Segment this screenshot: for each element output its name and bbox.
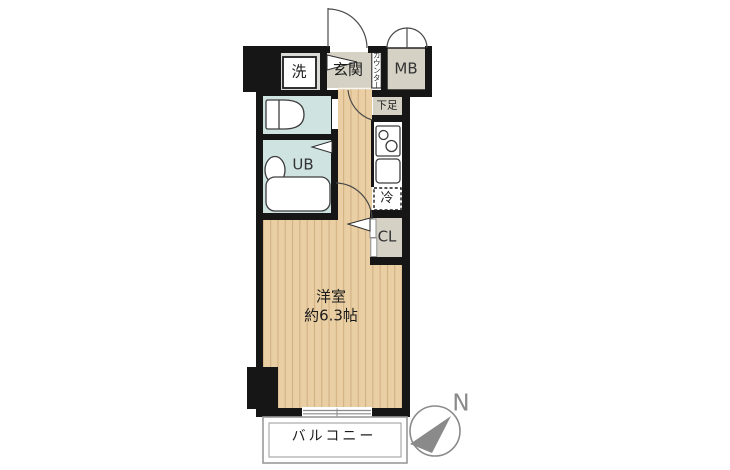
wall-segment <box>256 408 302 417</box>
wall-segment <box>256 213 338 220</box>
structural-column <box>247 367 278 409</box>
wall-segment <box>371 120 374 187</box>
wall-segment <box>258 134 338 140</box>
main-room-name: 洋室 <box>304 287 358 306</box>
wall-segment <box>370 257 410 265</box>
wall-segment <box>381 47 387 92</box>
wall-segment <box>320 47 327 92</box>
stove-fixture <box>376 126 400 156</box>
closet-label: CL <box>378 228 397 247</box>
compass-north-label: N <box>452 390 469 419</box>
refrigerator-label: 冷 <box>380 191 393 207</box>
laundry-label: 洗 <box>291 63 306 82</box>
balcony-label: バルコニー <box>292 428 377 446</box>
wall-segment <box>243 46 281 92</box>
unit-bath-label: UB <box>292 156 313 175</box>
wall-segment <box>372 408 410 417</box>
wall-segment <box>402 96 410 417</box>
wall-segment <box>425 46 432 97</box>
sink-fixture <box>376 159 400 183</box>
entrance-door-arc <box>328 8 367 48</box>
wall-segment <box>372 115 410 122</box>
floor-plan-drawing <box>0 0 730 470</box>
meter-box-label: MB <box>394 60 417 79</box>
floor-plan: 洗 玄関 カウンター MB 下足 UB 冷 CL 洋室 約6.3帖 バルコニー … <box>0 0 730 470</box>
main-room-label: 洋室 約6.3帖 <box>304 287 358 325</box>
meter-box-door-arcs <box>387 28 427 48</box>
entrance-label: 玄関 <box>333 61 363 80</box>
closet-sliding-doors <box>370 219 377 257</box>
wall-segment <box>370 210 410 218</box>
shoe-cabinet-label: 下足 <box>377 99 398 112</box>
wall-segment <box>256 90 338 96</box>
bathtub-fixture <box>266 177 330 211</box>
main-room-size: 約6.3帖 <box>304 306 358 325</box>
counter-label: カウンター <box>372 51 381 89</box>
